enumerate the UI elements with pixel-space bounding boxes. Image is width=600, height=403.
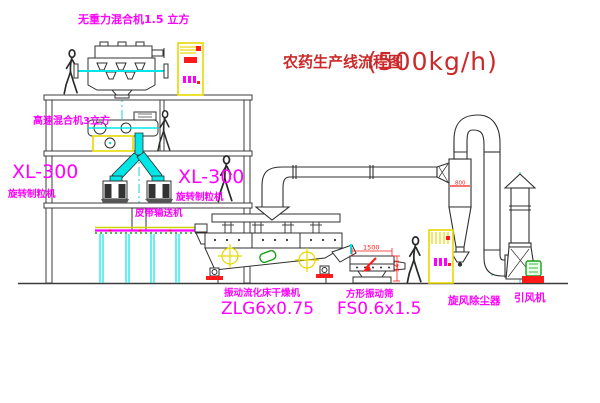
sieve-length-dimension: 1500 [363, 244, 380, 252]
belt-conveyor-drawing [95, 224, 214, 283]
fluid-bed-dryer-drawing [205, 214, 356, 283]
diagram-title-capacity: (500kg/h) [367, 47, 498, 76]
high-speed-mixer-label: 高速混合机3立方 [33, 114, 110, 127]
gravity-mixer-label: 无重力混合机1.5 立方 [77, 12, 189, 26]
downcomer-duct [484, 152, 508, 277]
granulator-left-model: XL-300 [12, 161, 78, 183]
cad-flow-diagram: 800 [0, 0, 600, 403]
granulator-left-drawing [101, 181, 129, 203]
fan-label: 引风机 [514, 291, 546, 304]
sieve-height-dimension: 541 [393, 260, 401, 272]
chimney-drawing [505, 174, 535, 243]
control-cabinet-right [429, 230, 453, 283]
induced-fan-drawing [506, 243, 544, 283]
cyclone-label: 旋风除尘器 [447, 294, 501, 307]
person-figure [407, 237, 420, 283]
exhaust-duct [256, 163, 449, 220]
gravity-mixer-drawing [74, 42, 168, 98]
belt-conveyor-label: 皮带输送机 [134, 207, 183, 219]
sieve-model-label: FS0.6x1.5 [337, 299, 421, 319]
cyclone-dimension: 800 [455, 181, 466, 187]
granulator-left-name: 旋转制粒机 [7, 188, 56, 200]
control-cabinet-top [178, 43, 203, 95]
granulator-right-name: 旋转制粒机 [175, 191, 224, 203]
dryer-model-label: ZLG6x0.75 [221, 299, 314, 319]
diagram-drawing: 800 [0, 0, 600, 403]
granulator-right-model: XL-300 [178, 166, 244, 188]
dryer-name-label: 振动流化床干燥机 [224, 287, 301, 299]
granulator-right-drawing [145, 181, 173, 203]
